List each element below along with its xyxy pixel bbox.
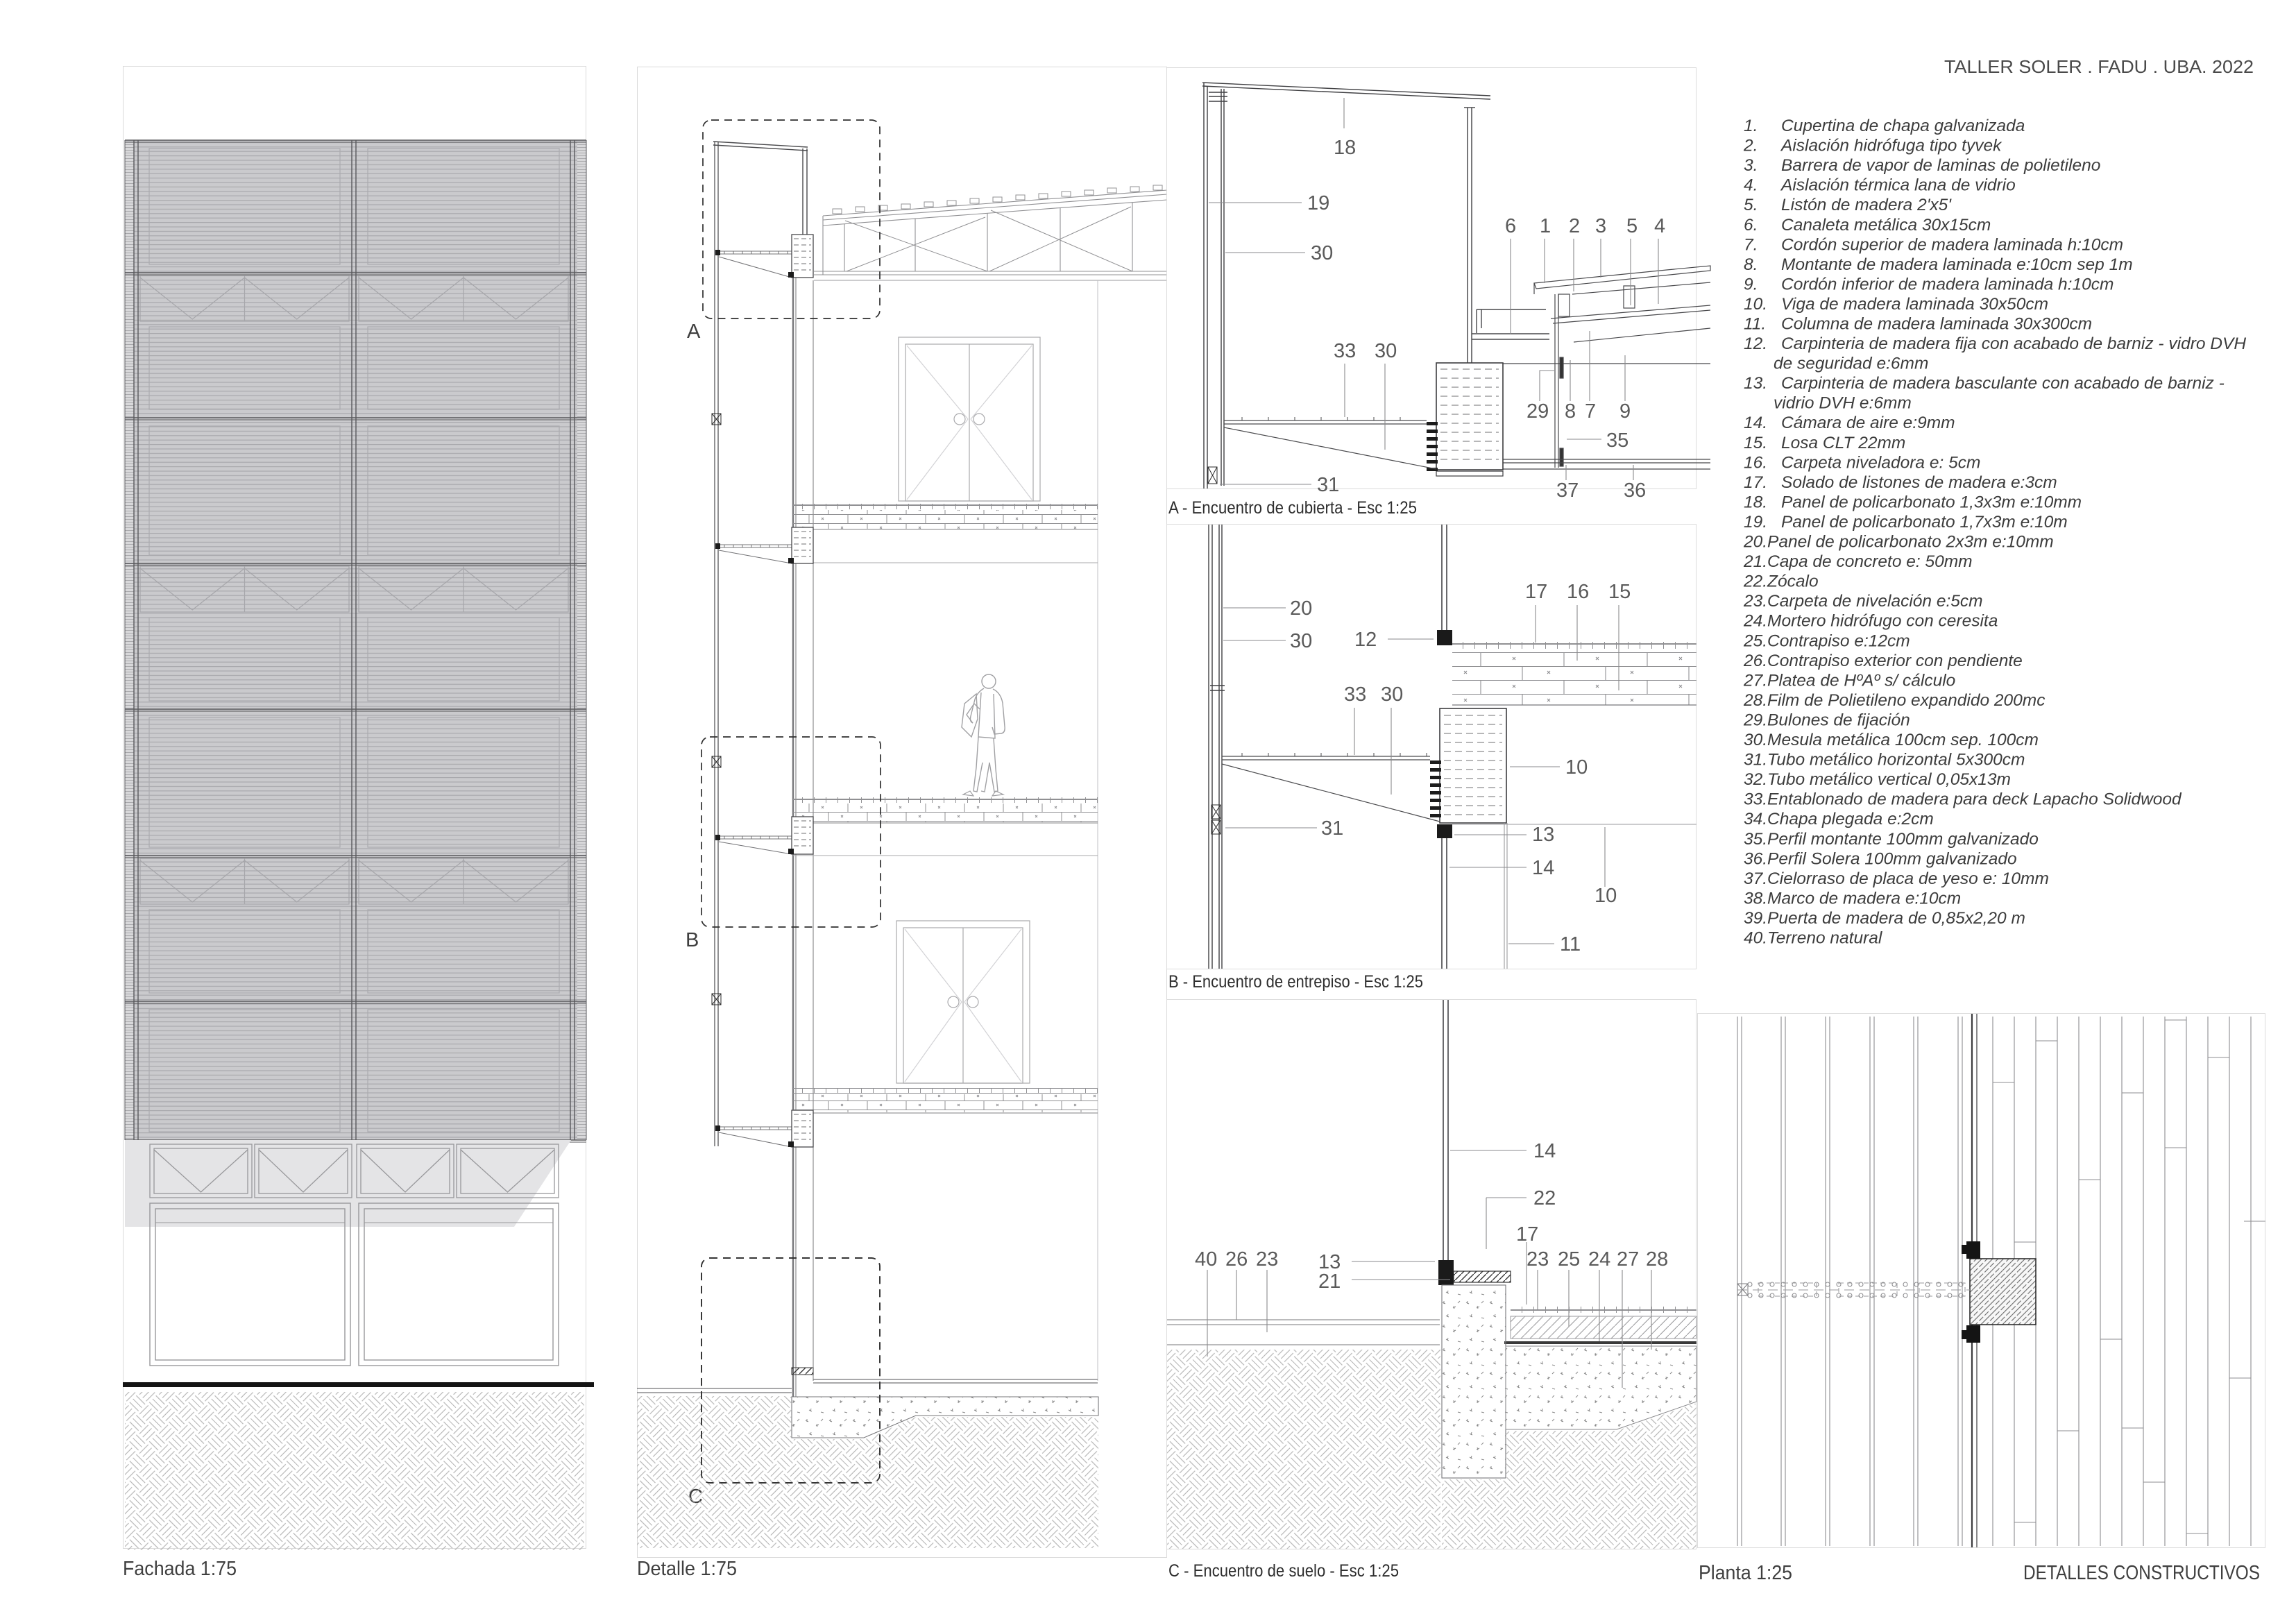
svg-text:9.: 9. [1744,275,1758,294]
svg-text:36: 36 [1624,479,1646,502]
svg-text:23.Carpeta de nivelación e:5cm: 23.Carpeta de nivelación e:5cm [1743,592,1983,611]
svg-text:27: 27 [1617,1248,1639,1271]
svg-text:18: 18 [1334,137,1356,159]
svg-text:B: B [686,929,699,951]
svg-text:DETALLES CONSTRUCTIVOS: DETALLES CONSTRUCTIVOS [2023,1562,2260,1584]
svg-text:Fachada 1:75: Fachada 1:75 [123,1558,237,1580]
svg-text:39.Puerta de madera de 0,85x2,: 39.Puerta de madera de 0,85x2,20 m [1744,909,2025,928]
svg-text:26: 26 [1225,1248,1248,1271]
svg-text:4.: 4. [1744,176,1758,195]
svg-text:Aislación térmica lana de vidr: Aislación térmica lana de vidrio [1780,176,2016,195]
svg-text:23: 23 [1527,1248,1549,1271]
svg-text:vidrio DVH e:6mm: vidrio DVH e:6mm [1774,394,1912,413]
svg-text:Panel de policarbonato 1,3x3m: Panel de policarbonato 1,3x3m e:10mm [1781,493,2082,511]
svg-text:37: 37 [1556,479,1579,502]
svg-text:C - Encuentro de suelo - Esc 1: C - Encuentro de suelo - Esc 1:25 [1168,1561,1399,1581]
svg-text:3.: 3. [1744,156,1758,175]
svg-text:11: 11 [1560,933,1581,955]
svg-text:20.Panel de policarbonato 2x3m: 20.Panel de policarbonato 2x3m e:10mm [1743,533,2054,552]
svg-text:13.: 13. [1744,374,1767,393]
svg-text:Detalle 1:75: Detalle 1:75 [637,1558,737,1580]
svg-text:38.Marco de madera e:10cm: 38.Marco de madera e:10cm [1744,889,1961,908]
svg-text:6: 6 [1505,215,1516,237]
svg-text:24: 24 [1588,1248,1610,1271]
svg-text:21: 21 [1318,1271,1341,1293]
svg-text:33: 33 [1344,683,1366,706]
svg-text:37.Cielorraso de placa de yeso: 37.Cielorraso de placa de yeso e: 10mm [1744,869,2049,888]
svg-text:de seguridad e:6mm: de seguridad e:6mm [1774,355,1928,373]
svg-text:16: 16 [1567,581,1589,603]
svg-text:26.Contrapiso exterior con pen: 26.Contrapiso exterior con pendiente [1743,652,2023,670]
svg-text:17: 17 [1525,581,1547,603]
svg-text:22: 22 [1533,1187,1556,1209]
svg-text:A - Encuentro de cubierta - Es: A - Encuentro de cubierta - Esc 1:25 [1168,498,1417,518]
svg-text:Montante de madera laminada e:: Montante de madera laminada e:10cm sep 1… [1781,255,2133,274]
svg-text:Cordón superior de madera lami: Cordón superior de madera laminada h:10c… [1781,235,2123,254]
svg-text:13: 13 [1532,824,1554,846]
svg-text:28.Film de Polietileno expandi: 28.Film de Polietileno expandido 200mc [1743,691,2045,710]
svg-text:1: 1 [1540,215,1551,237]
svg-text:36.Perfil Solera 100mm galvani: 36.Perfil Solera 100mm galvanizado [1744,849,2017,868]
svg-text:10: 10 [1595,885,1617,907]
svg-text:7: 7 [1585,400,1596,423]
svg-text:14.: 14. [1744,414,1767,432]
svg-text:33.Entablonado de madera para: 33.Entablonado de madera para deck Lapac… [1744,790,2182,809]
svg-text:31.Tubo metálico horizontal 5x: 31.Tubo metálico horizontal 5x300cm [1744,751,2025,770]
svg-text:29.Bulones de fijación: 29.Bulones de fijación [1743,711,1910,730]
svg-text:35: 35 [1606,430,1629,452]
svg-text:35.Perfil montante 100mm galva: 35.Perfil montante 100mm galvanizado [1744,830,2039,849]
svg-text:29: 29 [1527,400,1549,423]
svg-text:17: 17 [1516,1223,1538,1246]
svg-text:Barrera de vapor de laminas de: Barrera de vapor de laminas de polietile… [1781,156,2100,175]
svg-text:A: A [687,321,701,343]
svg-text:18.: 18. [1744,493,1767,511]
svg-text:2.: 2. [1743,137,1758,155]
svg-text:Carpinteria de madera basculan: Carpinteria de madera basculante con aca… [1781,374,2225,393]
svg-text:20: 20 [1290,597,1312,620]
svg-text:8: 8 [1565,400,1576,423]
svg-text:5: 5 [1626,215,1638,237]
svg-text:Cupertina de chapa galvanizada: Cupertina de chapa galvanizada [1781,117,2025,135]
svg-text:7.: 7. [1744,235,1758,254]
svg-text:33: 33 [1334,340,1356,362]
svg-text:Aislación hidrófuga tipo tyvek: Aislación hidrófuga tipo tyvek [1780,137,2002,155]
svg-text:Carpinteria de madera fija con: Carpinteria de madera fija con acabado d… [1781,334,2246,353]
svg-text:9: 9 [1619,400,1631,423]
svg-text:19: 19 [1307,192,1329,214]
svg-text:1.: 1. [1744,117,1758,135]
svg-text:40: 40 [1195,1248,1217,1271]
svg-text:Canaleta metálica 30x15cm: Canaleta metálica 30x15cm [1781,216,1991,235]
svg-text:27.Platea de HºAº s/ cálculo: 27.Platea de HºAº s/ cálculo [1743,671,1955,690]
svg-text:Panel de policarbonato 1,7x3m: Panel de policarbonato 1,7x3m e:10m [1781,513,2068,532]
svg-text:15.: 15. [1744,434,1767,452]
svg-text:25: 25 [1558,1248,1580,1271]
svg-text:Losa CLT 22mm: Losa CLT 22mm [1781,434,1905,452]
svg-text:22.Zócalo: 22.Zócalo [1743,572,1819,591]
svg-text:30: 30 [1290,630,1312,652]
svg-text:Viga de madera laminada 30x50c: Viga de madera laminada 30x50cm [1781,295,2048,314]
svg-text:31: 31 [1317,474,1339,496]
svg-text:12: 12 [1354,629,1377,651]
svg-text:TALLER SOLER . FADU . UBA. 202: TALLER SOLER . FADU . UBA. 2022 [1944,56,2254,77]
svg-text:4: 4 [1654,215,1665,237]
svg-text:3: 3 [1595,215,1606,237]
svg-text:30: 30 [1311,242,1333,264]
svg-text:6.: 6. [1744,216,1758,235]
svg-text:5.: 5. [1744,196,1758,214]
svg-text:Carpeta niveladora e: 5cm: Carpeta niveladora e: 5cm [1781,453,1980,472]
svg-text:34.Chapa plegada e:2cm: 34.Chapa plegada e:2cm [1744,810,1934,829]
svg-text:Listón de madera 2'x5': Listón de madera 2'x5' [1781,196,1952,214]
svg-text:11.: 11. [1744,315,1766,334]
svg-text:21.Capa de concreto e: 50mm: 21.Capa de concreto e: 50mm [1743,552,1973,571]
svg-text:24.Mortero hidrófugo con ceres: 24.Mortero hidrófugo con ceresita [1743,612,1998,631]
svg-text:Cordón inferior de madera lami: Cordón inferior de madera laminada h:10c… [1781,275,2114,294]
svg-text:30: 30 [1381,683,1403,706]
svg-text:10.: 10. [1744,295,1767,314]
svg-text:19.: 19. [1744,513,1767,532]
svg-text:25.Contrapiso e:12cm: 25.Contrapiso e:12cm [1743,631,1910,650]
svg-text:30.Mesula metálica 100cm sep.: 30.Mesula metálica 100cm sep. 100cm [1744,731,2039,749]
svg-text:Solado de listones de madera e: Solado de listones de madera e:3cm [1781,473,2057,492]
svg-text:B - Encuentro de entrepiso - E: B - Encuentro de entrepiso - Esc 1:25 [1168,972,1423,992]
svg-text:16.: 16. [1744,453,1767,472]
svg-text:Cámara de aire e:9mm: Cámara de aire e:9mm [1781,414,1955,432]
svg-text:8.: 8. [1744,255,1758,274]
svg-text:Columna de madera laminada 30x: Columna de madera laminada 30x300cm [1781,315,2092,334]
svg-text:32.Tubo metálico vertical 0,05: 32.Tubo metálico vertical 0,05x13m [1744,770,2011,789]
svg-text:40.Terreno natural: 40.Terreno natural [1744,929,1882,948]
svg-text:10: 10 [1565,756,1588,779]
svg-text:2: 2 [1569,215,1580,237]
svg-text:17.: 17. [1744,473,1767,492]
svg-text:Planta 1:25: Planta 1:25 [1699,1562,1792,1584]
svg-text:14: 14 [1533,1140,1556,1162]
svg-text:30: 30 [1375,340,1397,362]
svg-text:23: 23 [1256,1248,1278,1271]
svg-text:31: 31 [1321,817,1343,840]
svg-text:28: 28 [1646,1248,1668,1271]
svg-text:12.: 12. [1744,334,1767,353]
svg-text:14: 14 [1532,857,1554,879]
svg-text:15: 15 [1608,581,1631,603]
